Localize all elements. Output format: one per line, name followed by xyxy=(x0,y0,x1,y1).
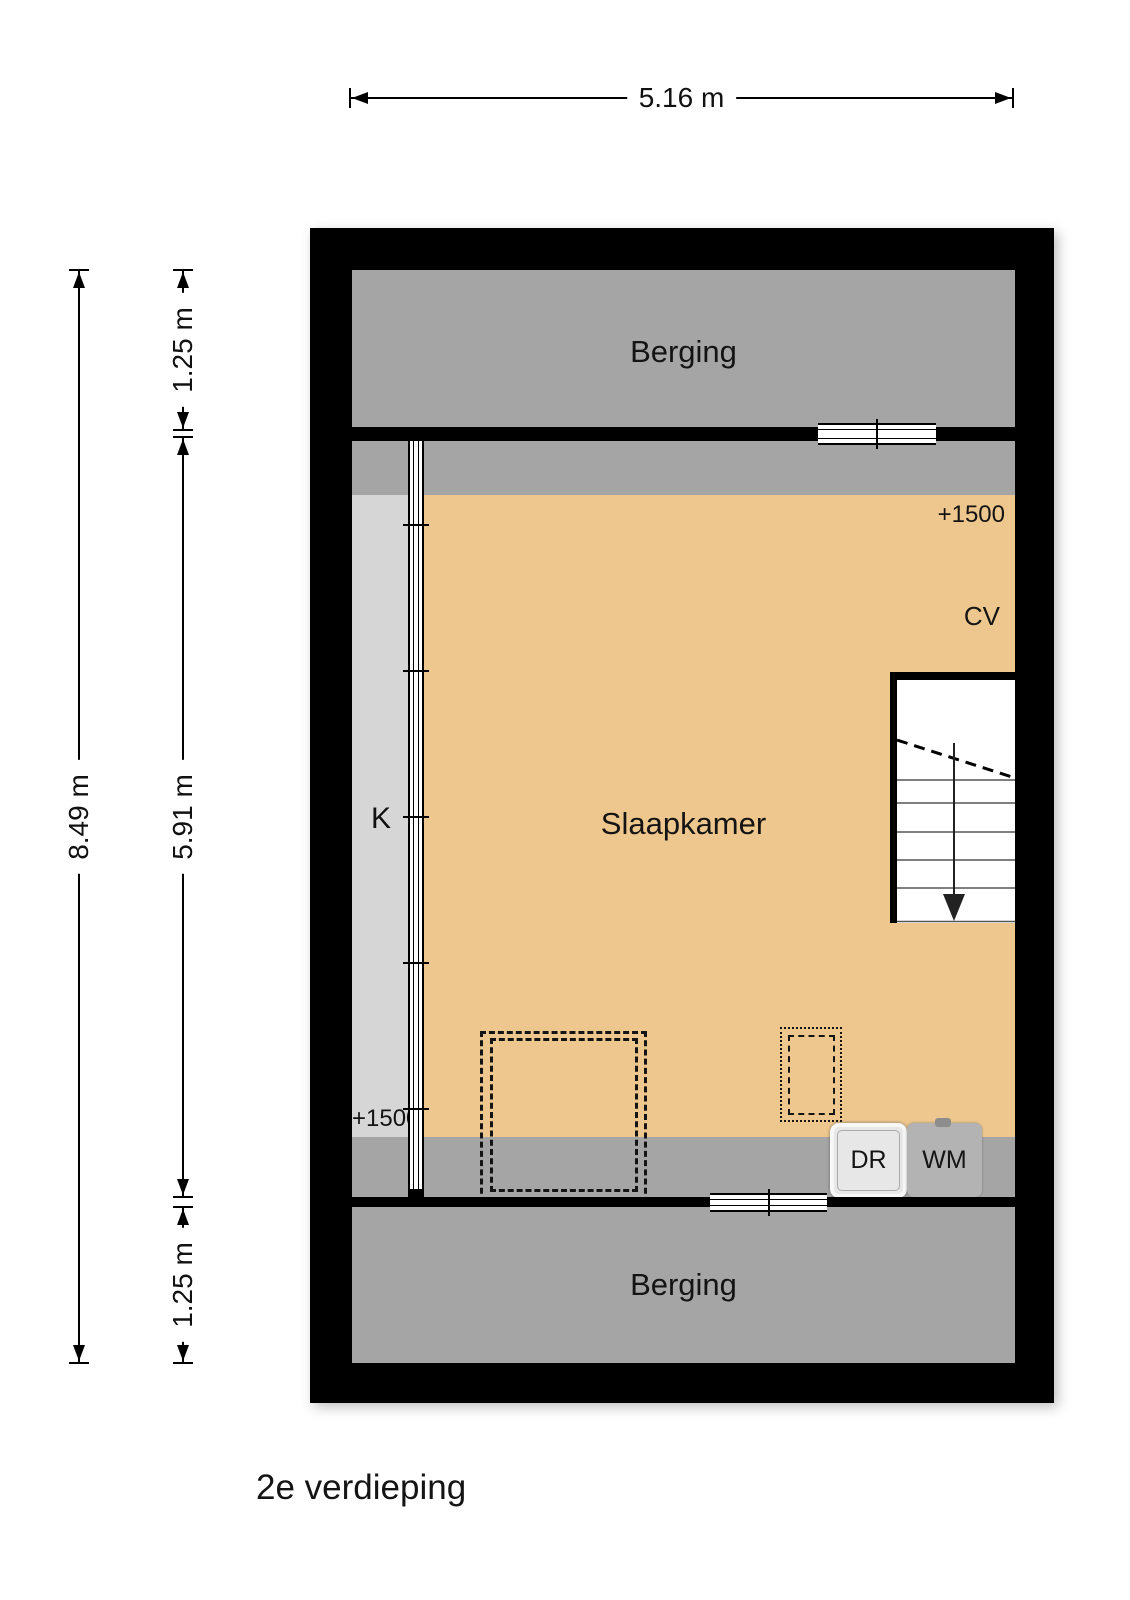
washer-appliance: WM xyxy=(907,1123,982,1197)
dimension-cap xyxy=(173,1196,193,1198)
washer-knob xyxy=(935,1118,951,1127)
floorplan-interior: Berging Slaapkamer K +1500 CV +1500 xyxy=(352,270,1015,1363)
window-mullion xyxy=(768,1189,770,1216)
stair-headroom-line xyxy=(897,740,1015,778)
dimension-cap xyxy=(173,1206,193,1208)
window-end-cap xyxy=(408,433,424,441)
arrow-up-icon xyxy=(73,272,85,288)
window-mullion xyxy=(403,1108,429,1110)
window-bottom-wall xyxy=(710,1193,827,1212)
floorplan-page: 5.16 m 8.49 m 1.25 m 5.91 m 1.25 m xyxy=(0,0,1130,1600)
dimension-label-width: 5.16 m xyxy=(627,82,737,114)
arrow-left-icon xyxy=(352,92,368,104)
dimension-width-total: 5.16 m xyxy=(350,88,1013,108)
window-mullion xyxy=(403,816,429,818)
room-label-berging-bottom: Berging xyxy=(352,1267,1015,1303)
dimension-cap xyxy=(173,1362,193,1364)
room-berging-top: Berging xyxy=(352,270,1015,427)
dimension-label-height-total: 8.49 m xyxy=(61,760,97,874)
window-top-wall xyxy=(818,423,936,445)
staircase-drawing xyxy=(897,680,1015,923)
interior-wall-bottom xyxy=(352,1197,1015,1207)
staircase xyxy=(890,672,1015,923)
dryer-frame xyxy=(837,1130,900,1191)
arrow-right-icon xyxy=(995,92,1011,104)
arrow-up-icon xyxy=(177,1209,189,1225)
dimension-height-total: 8.49 m xyxy=(69,270,89,1363)
dimension-label-bottom-segment: 1.25 m xyxy=(165,1228,201,1342)
dimension-cap xyxy=(349,88,351,108)
dormer-outline-inner xyxy=(490,1038,638,1192)
arrow-down-icon xyxy=(177,1179,189,1195)
outer-wall: Berging Slaapkamer K +1500 CV +1500 xyxy=(310,228,1054,1403)
dimension-cap xyxy=(173,429,193,431)
cv-boiler-label: CV xyxy=(964,601,1000,632)
dimension-cap xyxy=(69,1362,89,1364)
roof-window-outline-inner xyxy=(788,1035,835,1115)
washer-label: WM xyxy=(922,1146,966,1175)
window-end-cap xyxy=(408,1189,424,1197)
window-mullion xyxy=(403,962,429,964)
arrow-up-icon xyxy=(177,272,189,288)
window-mullion xyxy=(403,524,429,526)
dimension-height-middle: 5.91 m xyxy=(173,437,193,1197)
stair-down-arrow-icon xyxy=(943,894,965,921)
dimension-cap xyxy=(69,269,89,271)
arrow-down-icon xyxy=(73,1345,85,1361)
dimension-cap xyxy=(173,269,193,271)
dimension-cap xyxy=(1012,88,1014,108)
dimension-label-top-segment: 1.25 m xyxy=(165,293,201,407)
height-marker-top: +1500 xyxy=(938,501,1005,529)
dimension-cap xyxy=(173,436,193,438)
height-marker-bottom: +1500 xyxy=(352,1105,410,1133)
window-mullion xyxy=(403,670,429,672)
dimension-height-bottom-berging: 1.25 m xyxy=(173,1207,193,1363)
arrow-up-icon xyxy=(177,439,189,455)
dimension-height-top-berging: 1.25 m xyxy=(173,270,193,430)
dimension-label-middle-segment: 5.91 m xyxy=(165,760,201,874)
room-berging-bottom: Berging xyxy=(352,1207,1015,1363)
dryer-appliance: DR xyxy=(830,1123,907,1198)
room-label-closet: K xyxy=(352,802,410,836)
arrow-down-icon xyxy=(177,412,189,428)
arrow-down-icon xyxy=(177,1345,189,1361)
room-label-berging-top: Berging xyxy=(352,334,1015,370)
window-mullion xyxy=(876,419,878,449)
window-vertical-partition xyxy=(408,433,424,1197)
low-headroom-strip-top xyxy=(352,441,1015,495)
floor-title: 2e verdieping xyxy=(256,1468,466,1508)
